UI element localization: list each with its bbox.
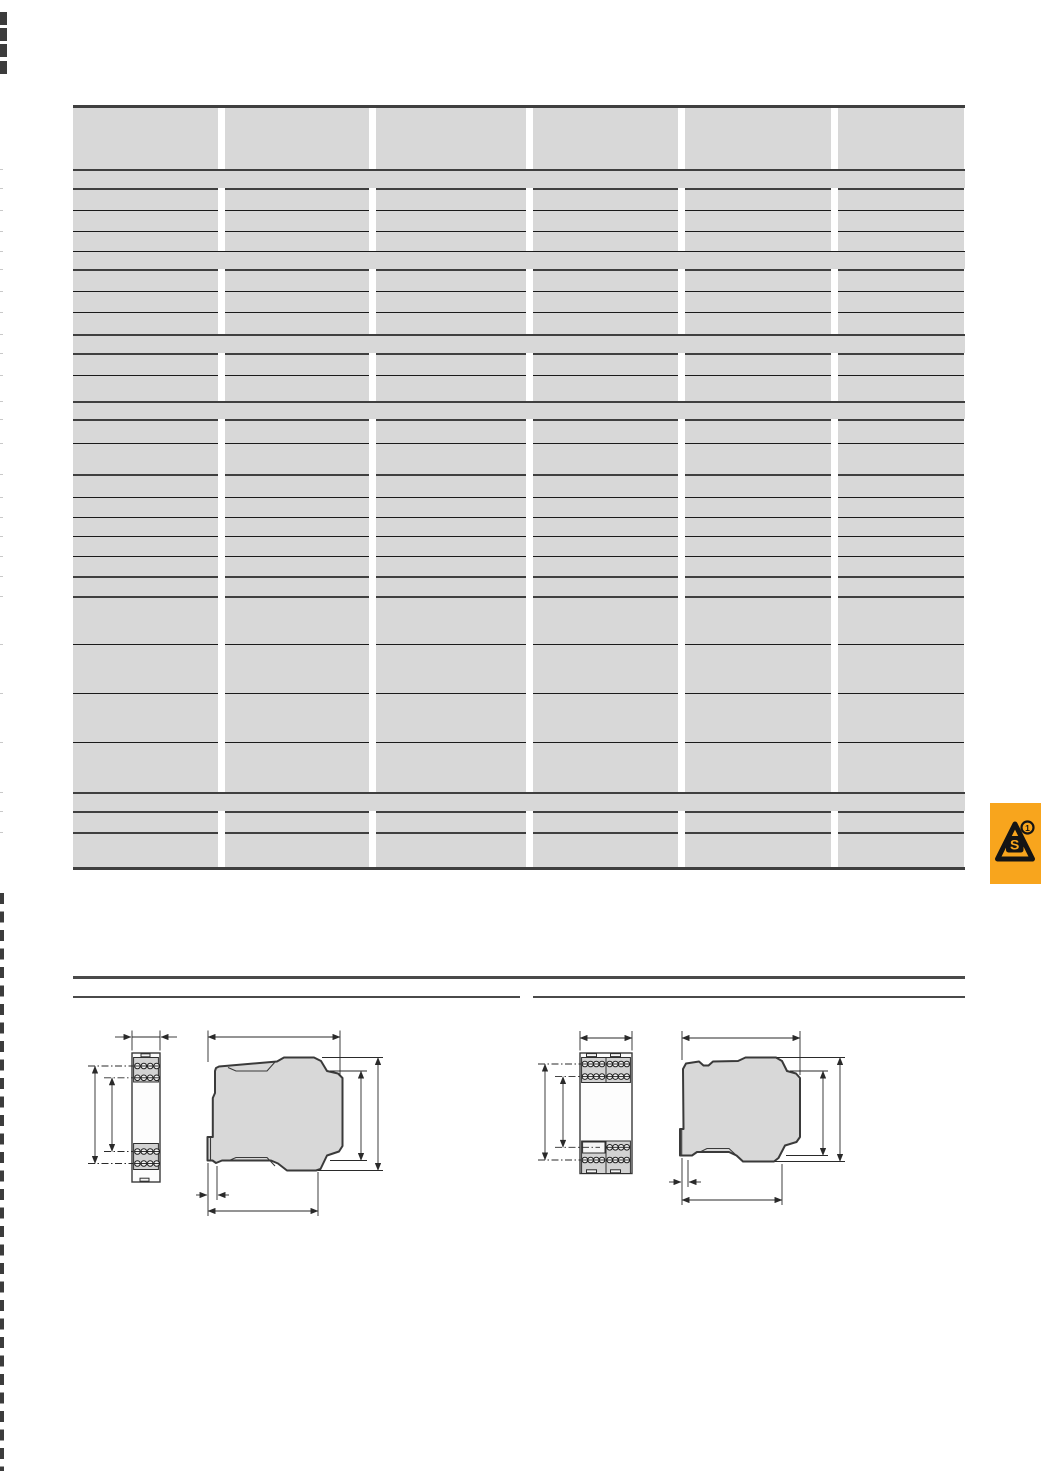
table-cell (533, 596, 678, 644)
row-tick (0, 443, 3, 444)
row-tick (0, 210, 3, 211)
table-cell (838, 312, 964, 334)
table-cell (73, 312, 218, 334)
table-cell (376, 269, 526, 291)
table-cell (533, 210, 678, 231)
table-cell (838, 291, 964, 312)
table-cell (838, 517, 964, 536)
table-cell (73, 188, 218, 210)
table-cell (685, 742, 831, 792)
row-tick (0, 792, 3, 793)
table-cell (225, 269, 369, 291)
table-cell (73, 497, 218, 517)
section-rule-full (73, 976, 965, 979)
table-cell (838, 644, 964, 693)
table-cell (685, 811, 831, 832)
table-cell (838, 497, 964, 517)
table-cell (838, 536, 964, 556)
table-cell (838, 443, 964, 474)
table-cell (533, 312, 678, 334)
table-cell (225, 811, 369, 832)
row-tick (0, 474, 3, 475)
table-cell (73, 556, 218, 576)
module-front-view-narrow (132, 1053, 160, 1182)
row-tick (0, 811, 3, 812)
side-profile (208, 1058, 343, 1171)
row-tick (0, 576, 3, 577)
table-cell (376, 693, 526, 742)
housing-tab (611, 1054, 621, 1057)
safety-badge: S 1 (990, 803, 1041, 889)
edge-block-mark (0, 44, 7, 57)
row-tick (0, 353, 3, 354)
table-cell (73, 474, 218, 497)
table-cell (533, 811, 678, 832)
table-cell (685, 596, 831, 644)
row-tick (0, 536, 3, 537)
housing-tab (140, 1178, 149, 1181)
table-section-band (73, 169, 965, 188)
module-side-view-wide (680, 1058, 800, 1162)
table-row (73, 188, 965, 210)
specs-table (73, 105, 965, 870)
table-row (73, 419, 965, 443)
table-cell (685, 312, 831, 334)
table-row (73, 742, 965, 792)
housing-tab (141, 1054, 150, 1057)
table-cell (73, 353, 218, 375)
table-row (73, 576, 965, 596)
row-tick (0, 556, 3, 557)
table-cell (73, 742, 218, 792)
header-cell (838, 108, 964, 169)
row-tick (0, 291, 3, 292)
table-cell (376, 536, 526, 556)
table-cell (376, 474, 526, 497)
table-section-band (73, 401, 965, 419)
table-cell (225, 517, 369, 536)
catalog-page: S 1 (0, 0, 1041, 1471)
edge-block-mark (0, 28, 7, 41)
row-tick (0, 401, 3, 402)
table-section-band (73, 334, 965, 353)
table-cell (838, 742, 964, 792)
table-cell (533, 497, 678, 517)
table-cell (533, 291, 678, 312)
fold-dashed-line (0, 893, 4, 1471)
table-cell (73, 443, 218, 474)
row-tick (0, 832, 3, 833)
table-cell (533, 419, 678, 443)
table-cell (838, 693, 964, 742)
table-cell (533, 536, 678, 556)
table-cell (533, 188, 678, 210)
table-cell (685, 644, 831, 693)
row-tick (0, 188, 3, 189)
table-cell (225, 693, 369, 742)
table-cell (225, 536, 369, 556)
row-tick (0, 334, 3, 335)
table-row (73, 556, 965, 576)
housing-tab (587, 1170, 597, 1173)
table-cell (838, 596, 964, 644)
table-cell (838, 832, 964, 867)
table-cell (838, 474, 964, 497)
table-cell (376, 742, 526, 792)
table-section-band (73, 792, 965, 811)
table-row (73, 375, 965, 401)
table-row (73, 312, 965, 334)
table-cell (73, 291, 218, 312)
table-cell (838, 188, 964, 210)
table-cell (376, 419, 526, 443)
table-cell (838, 269, 964, 291)
table-row (73, 517, 965, 536)
table-row (73, 474, 965, 497)
table-cell (376, 312, 526, 334)
badge-superscript: 1 (1025, 823, 1030, 833)
table-cell (685, 474, 831, 497)
row-tick (0, 231, 3, 232)
table-cell (376, 811, 526, 832)
table-cell (73, 644, 218, 693)
row-tick (0, 169, 3, 170)
table-cell (376, 210, 526, 231)
table-cell (376, 375, 526, 401)
row-tick (0, 596, 3, 597)
table-cell (225, 832, 369, 867)
housing-tab (611, 1170, 621, 1173)
table-row (73, 231, 965, 251)
table-section-band (73, 251, 965, 269)
header-cell (73, 108, 218, 169)
table-cell (225, 375, 369, 401)
edge-block-mark (0, 61, 7, 74)
table-cell (685, 210, 831, 231)
table-cell (685, 497, 831, 517)
edge-block-mark (0, 12, 7, 25)
table-cell (838, 556, 964, 576)
table-cell (376, 353, 526, 375)
table-row (73, 291, 965, 312)
row-tick (0, 517, 3, 518)
table-cell (685, 231, 831, 251)
table-cell (533, 375, 678, 401)
table-cell (73, 269, 218, 291)
table-cell (225, 497, 369, 517)
table-cell (73, 419, 218, 443)
table-cell (685, 517, 831, 536)
table-cell (838, 375, 964, 401)
row-tick (0, 251, 3, 252)
safety-triangle-icon: S 1 (990, 803, 1041, 884)
table-cell (225, 556, 369, 576)
row-tick (0, 497, 3, 498)
table-row (73, 644, 965, 693)
table-cell (533, 556, 678, 576)
table-cell (533, 443, 678, 474)
table-row (73, 353, 965, 375)
header-cell (376, 108, 526, 169)
table-cell (838, 811, 964, 832)
table-cell (685, 419, 831, 443)
row-tick (0, 644, 3, 645)
table-cell (838, 576, 964, 596)
table-cell (73, 231, 218, 251)
header-cell (225, 108, 369, 169)
table-cell (73, 693, 218, 742)
header-cell (533, 108, 678, 169)
table-cell (376, 596, 526, 644)
table-cell (73, 596, 218, 644)
table-cell (533, 832, 678, 867)
table-row (73, 497, 965, 517)
table-cell (685, 188, 831, 210)
table-cell (685, 269, 831, 291)
table-cell (225, 443, 369, 474)
table-cell (376, 556, 526, 576)
table-cell (533, 693, 678, 742)
table-cell (225, 231, 369, 251)
table-cell (685, 375, 831, 401)
table-cell (533, 576, 678, 596)
table-cell (685, 576, 831, 596)
side-profile (680, 1058, 800, 1162)
badge-letter: S (1010, 837, 1019, 853)
table-cell (225, 188, 369, 210)
table-row (73, 210, 965, 231)
table-cell (533, 269, 678, 291)
table-cell (533, 742, 678, 792)
table-cell (376, 832, 526, 867)
table-cell (225, 644, 369, 693)
table-cell (838, 353, 964, 375)
table-cell (533, 644, 678, 693)
table-cell (225, 291, 369, 312)
table-row (73, 443, 965, 474)
table-cell (533, 517, 678, 536)
table-cell (225, 312, 369, 334)
table-cell (376, 497, 526, 517)
row-tick (0, 269, 3, 270)
table-cell (838, 210, 964, 231)
table-cell (533, 353, 678, 375)
table-header-row (73, 108, 965, 169)
table-cell (73, 811, 218, 832)
module-side-view-narrow (208, 1058, 343, 1171)
housing-tab (587, 1054, 597, 1057)
header-cell (685, 108, 831, 169)
table-cell (376, 231, 526, 251)
table-cell (376, 576, 526, 596)
table-cell (685, 536, 831, 556)
table-cell (685, 443, 831, 474)
row-tick (0, 375, 3, 376)
table-cell (376, 443, 526, 474)
row-tick (0, 419, 3, 420)
table-row (73, 596, 965, 644)
table-cell (533, 474, 678, 497)
table-row (73, 693, 965, 742)
section-rule-right (533, 996, 965, 998)
table-cell (685, 693, 831, 742)
table-cell (685, 291, 831, 312)
table-cell (376, 644, 526, 693)
table-cell (73, 576, 218, 596)
table-cell (225, 210, 369, 231)
table-cell (73, 210, 218, 231)
module-front-view-wide (580, 1053, 632, 1174)
table-cell (838, 419, 964, 443)
row-tick (0, 693, 3, 694)
table-cell (376, 188, 526, 210)
table-cell (225, 576, 369, 596)
dimension-drawings (70, 1020, 975, 1225)
table-cell (685, 353, 831, 375)
table-cell (225, 474, 369, 497)
table-row (73, 832, 965, 867)
table-cell (533, 231, 678, 251)
table-cell (376, 517, 526, 536)
table-cell (225, 419, 369, 443)
section-rule-left (73, 996, 520, 998)
table-cell (225, 596, 369, 644)
table-row (73, 536, 965, 556)
table-row (73, 269, 965, 291)
table-cell (73, 375, 218, 401)
table-cell (73, 517, 218, 536)
table-cell (225, 742, 369, 792)
table-cell (376, 291, 526, 312)
table-cell (73, 536, 218, 556)
table-cell (685, 556, 831, 576)
table-cell (685, 832, 831, 867)
table-cell (838, 231, 964, 251)
table-cell (225, 353, 369, 375)
table-cell (73, 832, 218, 867)
table-row (73, 811, 965, 832)
row-tick (0, 312, 3, 313)
row-tick (0, 742, 3, 743)
